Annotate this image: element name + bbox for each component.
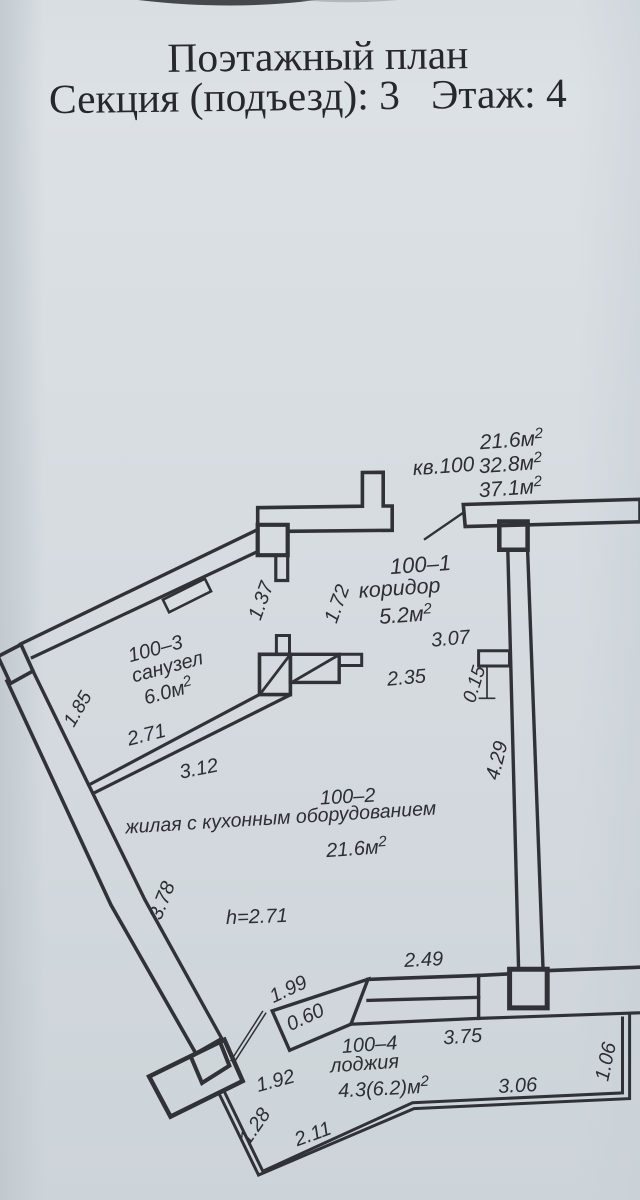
svg-text:3.07: 3.07 bbox=[430, 626, 472, 651]
svg-text:3.06: 3.06 bbox=[498, 1074, 539, 1098]
svg-text:Секция (подъезд): 3 Этаж: 4: Секция (подъезд): 3 Этаж: 4 bbox=[49, 70, 568, 123]
svg-text:2.49: 2.49 bbox=[403, 948, 444, 972]
svg-text:h=2.71: h=2.71 bbox=[226, 905, 288, 929]
svg-text:кв.100: кв.100 bbox=[412, 453, 476, 480]
svg-text:2.35: 2.35 bbox=[385, 665, 428, 690]
svg-text:3.75: 3.75 bbox=[442, 1025, 483, 1050]
